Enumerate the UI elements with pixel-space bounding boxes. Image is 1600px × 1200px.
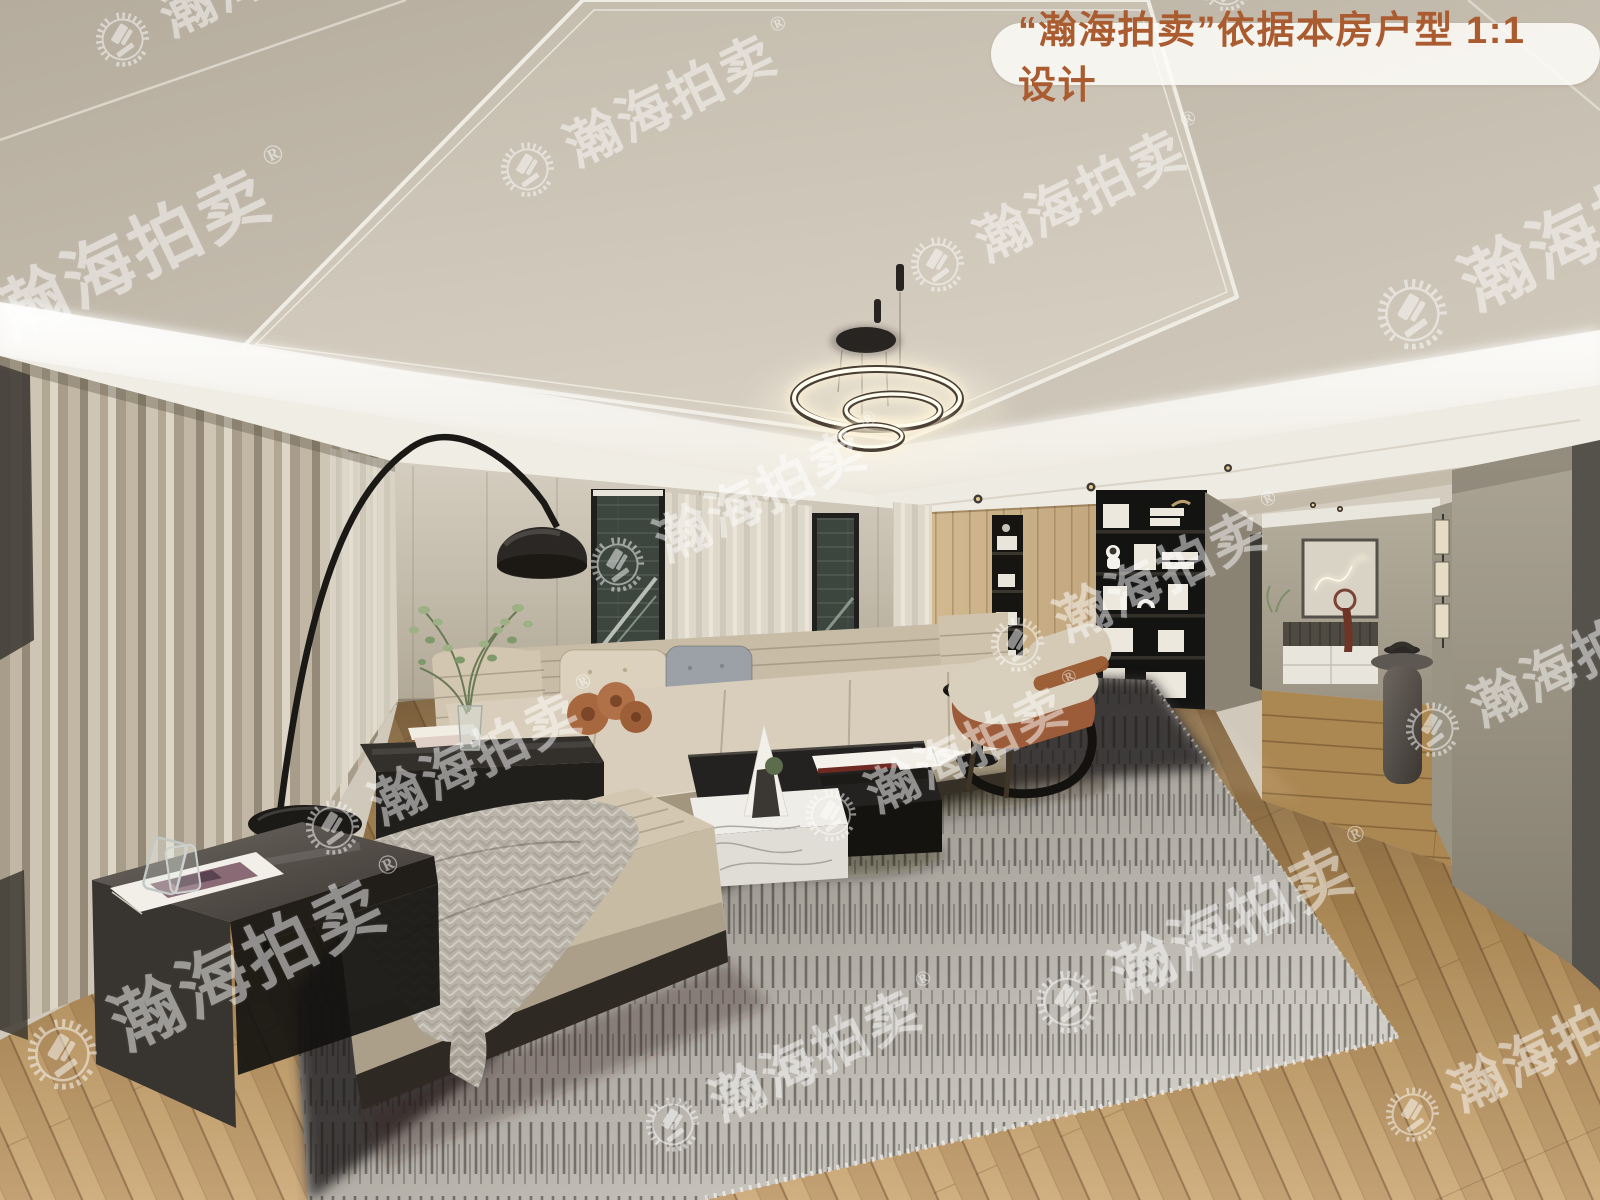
design-badge: “瀚海拍卖”依据本房户型 1:1 设计 [991,23,1600,85]
design-badge-text: “瀚海拍卖”依据本房户型 1:1 设计 [1018,0,1573,109]
window-gap [0,365,34,660]
door-jamb [1250,533,1262,690]
wall-art-panels [1435,514,1449,648]
artwork [1303,540,1377,617]
living-room-render [0,0,1600,1200]
sideboard [1283,622,1378,684]
screenshot-root: 瀚海拍卖®瀚海拍卖®瀚海拍卖®瀚海拍卖®瀚海拍卖®瀚海拍卖®瀚海拍卖®瀚海拍卖®… [0,0,1600,1200]
